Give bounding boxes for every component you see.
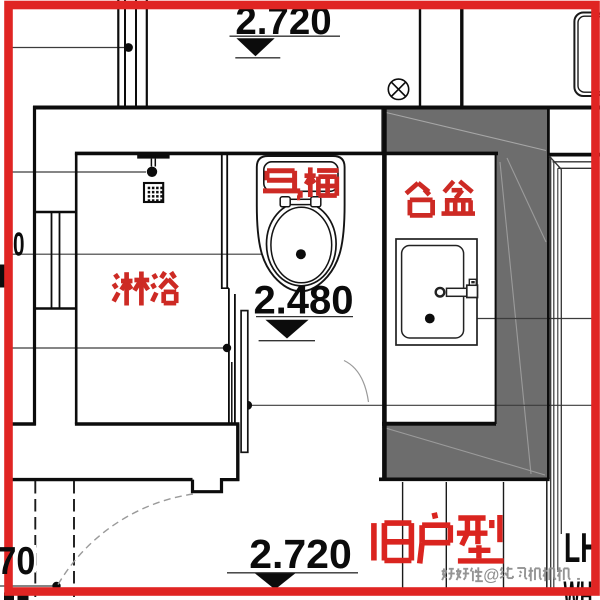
svg-text:770: 770 (0, 540, 35, 583)
svg-text:0: 0 (13, 225, 25, 262)
svg-text:2.480: 2.480 (253, 279, 353, 323)
svg-text:WH: WH (564, 574, 593, 600)
svg-text:@: @ (483, 566, 500, 584)
svg-text:2.720: 2.720 (249, 531, 352, 577)
